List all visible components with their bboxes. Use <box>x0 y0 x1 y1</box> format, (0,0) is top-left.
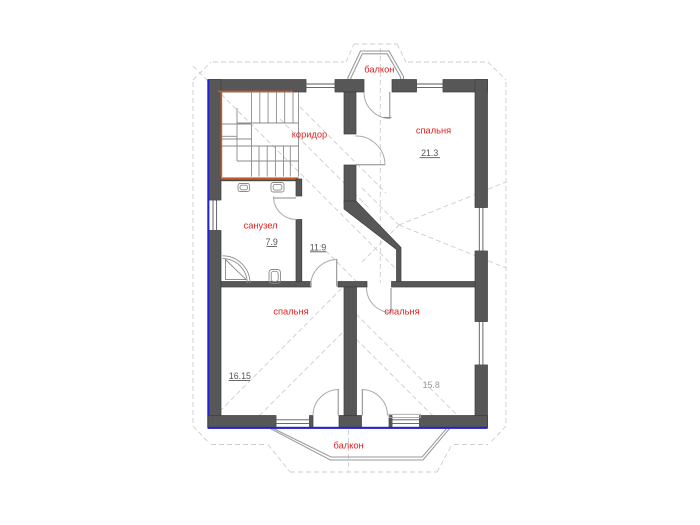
svg-text:балкон: балкон <box>334 441 364 451</box>
svg-text:15.8: 15.8 <box>423 380 440 390</box>
svg-text:балкон: балкон <box>364 64 394 74</box>
svg-text:7.9: 7.9 <box>266 237 278 247</box>
svg-text:спальня: спальня <box>384 307 419 317</box>
svg-text:16.15: 16.15 <box>229 371 251 381</box>
svg-text:спальня: спальня <box>416 125 451 135</box>
svg-text:11.9: 11.9 <box>310 242 327 252</box>
svg-text:санузел: санузел <box>244 221 278 231</box>
svg-text:спальня: спальня <box>273 307 308 317</box>
svg-text:21.3: 21.3 <box>421 148 438 158</box>
svg-text:коридор: коридор <box>292 130 327 140</box>
